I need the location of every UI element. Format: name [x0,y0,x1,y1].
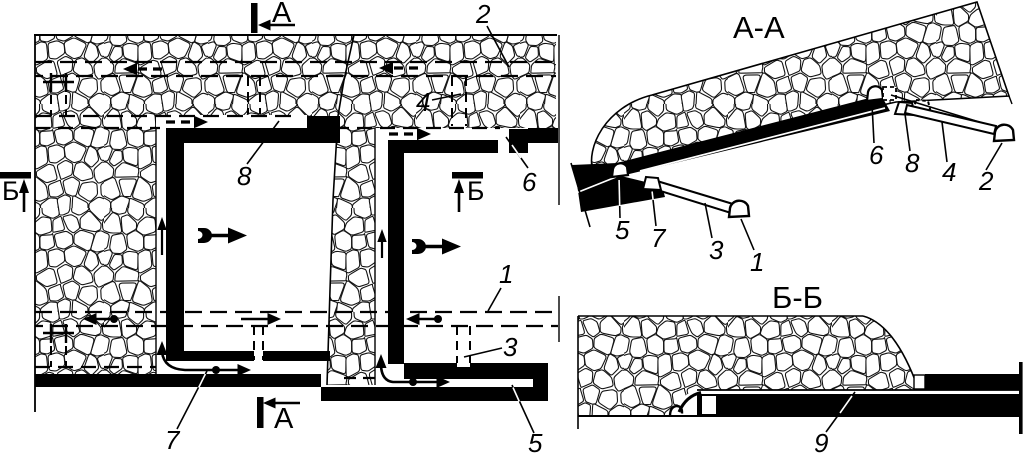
svg-text:3: 3 [709,235,724,265]
svg-text:2: 2 [475,0,491,29]
svg-text:1: 1 [499,259,513,289]
svg-text:8: 8 [905,148,920,178]
svg-text:4: 4 [942,157,956,187]
svg-text:1: 1 [750,247,764,277]
svg-text:А: А [274,403,294,435]
svg-text:3: 3 [503,332,518,362]
svg-text:2: 2 [978,166,994,196]
svg-text:7: 7 [165,425,181,454]
svg-text:Б-Б: Б-Б [772,280,823,315]
svg-text:9: 9 [814,428,828,454]
svg-text:Б: Б [467,176,484,206]
svg-text:А-А: А-А [733,10,785,45]
svg-text:6: 6 [522,167,537,197]
svg-text:6: 6 [869,140,884,170]
svg-text:7: 7 [651,223,667,253]
svg-text:8: 8 [237,161,252,191]
svg-text:5: 5 [528,428,543,454]
svg-text:А: А [272,0,292,29]
svg-text:Б: Б [2,176,19,206]
svg-text:5: 5 [615,215,630,245]
svg-text:4: 4 [416,87,430,117]
